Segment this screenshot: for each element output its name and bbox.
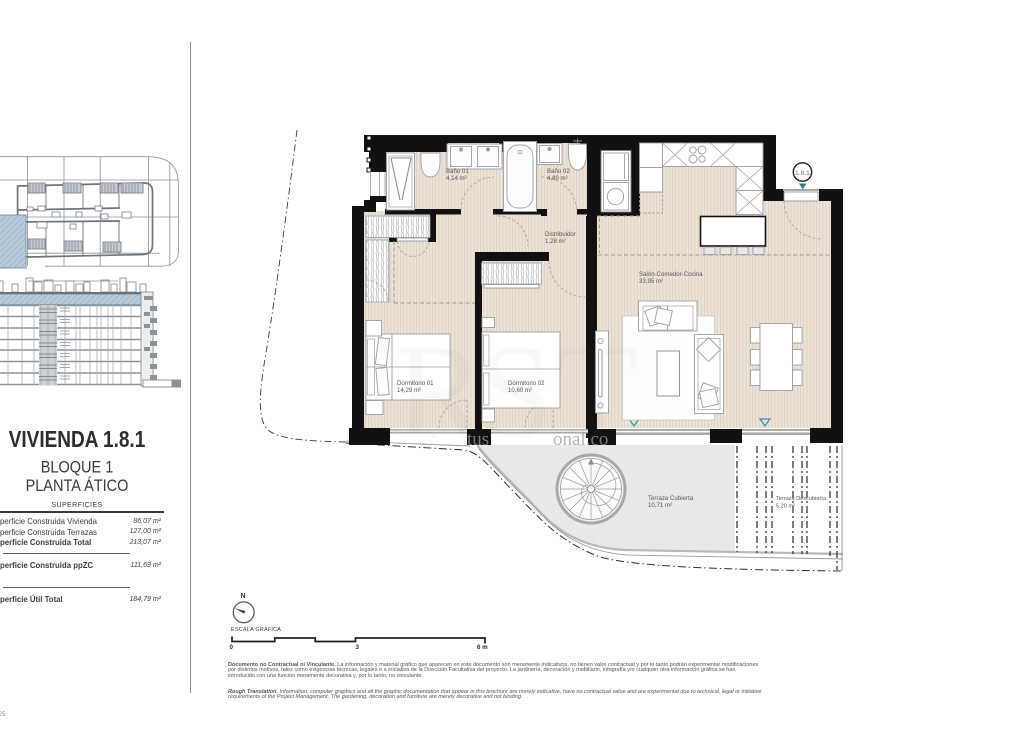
svg-text:1.8.1: 1.8.1 [795,170,810,177]
svg-text:14,29 m²: 14,29 m² [397,387,421,394]
svg-text:T: T [556,318,638,467]
svg-text:0: 0 [230,644,234,651]
svg-text:Terraza Cubierta: Terraza Cubierta [648,495,694,502]
svg-text:4,14 m²: 4,14 m² [446,175,467,182]
svg-text:5,20 m²: 5,20 m² [776,504,795,510]
svg-text:4,80 m²: 4,80 m² [547,175,568,182]
svg-text:Terraza Descubierta: Terraza Descubierta [776,496,827,502]
svg-text:Dormitorio 01: Dormitorio 01 [397,380,434,387]
svg-text:10,71 m²: 10,71 m² [648,502,672,509]
svg-text:6 m: 6 m [477,644,488,651]
svg-text:N: N [241,593,246,600]
svg-text:1,28 m²: 1,28 m² [545,238,566,245]
svg-text:3: 3 [356,644,360,651]
svg-text:33,95 m²: 33,95 m² [639,278,663,285]
svg-text:10,60 m²: 10,60 m² [508,387,532,394]
svg-text:Salón-Comedor-Cocina: Salón-Comedor-Cocina [639,271,703,278]
svg-text:Baño 01: Baño 01 [446,168,469,175]
svg-text:Baño 02: Baño 02 [547,168,570,175]
svg-text:Distribuidor: Distribuidor [545,231,576,238]
svg-text:Dormitorio 02: Dormitorio 02 [508,380,545,387]
